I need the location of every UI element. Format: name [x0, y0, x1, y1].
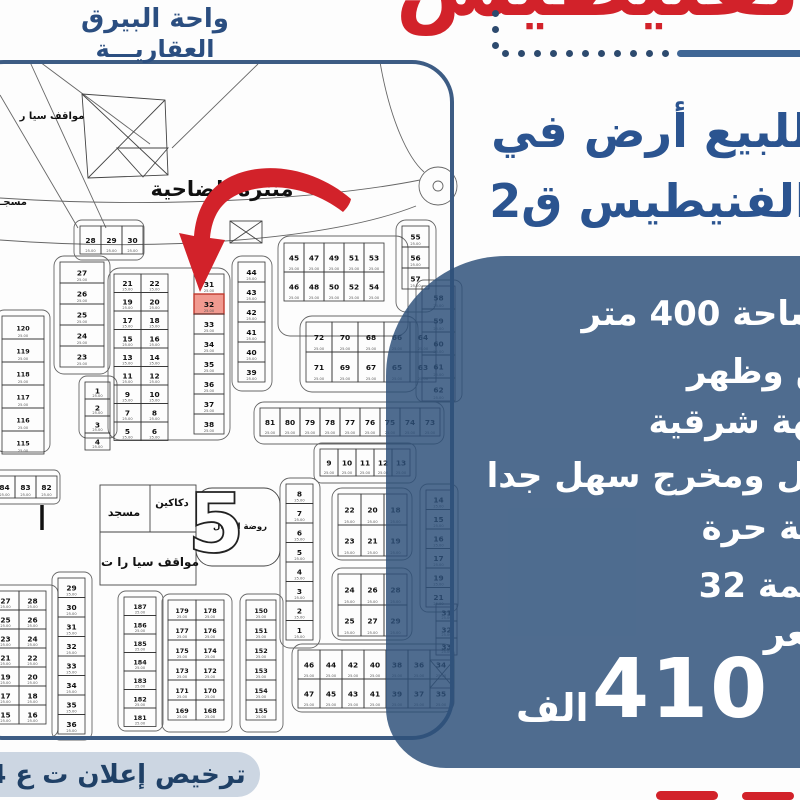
plot-dimension: 25.00 — [92, 428, 103, 432]
plot-number: 4 — [297, 568, 302, 577]
license-text: ترخيص إعلان ت ع 64 — [0, 760, 246, 790]
plot-dimension: 25.00 — [122, 343, 133, 347]
plot-dimension: 25.00 — [246, 377, 257, 381]
plot-dimension: 25.00 — [349, 267, 360, 271]
plot-number: 24 — [77, 331, 87, 340]
plot-dimension: 25.00 — [149, 306, 160, 310]
plot-number: 50 — [329, 282, 339, 291]
red-title: الفنيطيس — [430, 0, 800, 36]
plot-number: 41 — [370, 689, 380, 698]
dot — [582, 50, 589, 57]
plot-dimension: 25.00 — [246, 277, 257, 281]
plot-number: 55 — [410, 232, 420, 241]
plot-dimension: 25.00 — [177, 655, 188, 659]
plot-number: 118 — [16, 370, 30, 378]
plot-dimension: 25.00 — [204, 349, 215, 353]
plot-dimension: 25.00 — [324, 471, 335, 475]
plot-number: 81 — [265, 418, 275, 427]
plot-dimension: 25.00 — [289, 296, 300, 300]
plot-number: 13 — [122, 353, 132, 362]
plot-number: 17 — [122, 316, 132, 325]
price-value: 410 — [592, 642, 769, 737]
plot-dimension: 25.00 — [27, 605, 38, 609]
plot-dimension: 25.00 — [92, 394, 103, 398]
plot-dimension: 25.00 — [20, 493, 31, 497]
plot-dimension: 25.00 — [294, 577, 305, 581]
plot-dimension: 25.00 — [149, 399, 160, 403]
plot-dimension: 25.00 — [367, 551, 378, 555]
plot-dimension: 25.00 — [135, 685, 146, 689]
dot — [492, 10, 499, 17]
plot-dimension: 25.00 — [326, 674, 337, 678]
plot-number: 54 — [369, 282, 379, 291]
plot-dimension: 25.00 — [0, 605, 11, 609]
plot-dimension: 25.00 — [122, 306, 133, 310]
plot-dimension: 25.00 — [344, 551, 355, 555]
plot-number: 153 — [254, 667, 267, 675]
plot-number: 18 — [27, 691, 37, 700]
plot-dimension: 25.00 — [122, 380, 133, 384]
plot-dimension: 25.00 — [27, 700, 38, 704]
plot-dimension: 25.00 — [66, 710, 77, 714]
plot-dimension: 25.00 — [314, 347, 325, 351]
plot-dimension: 25.00 — [0, 624, 11, 628]
brand-name-line1: واحة البيرق — [40, 4, 270, 35]
plot-number: 171 — [175, 687, 188, 695]
red-sliver — [656, 791, 718, 800]
plot-number: 24 — [27, 634, 37, 643]
plot-dimension: 25.00 — [122, 288, 133, 292]
plot-number: 67 — [366, 363, 376, 372]
plot-dimension: 25.00 — [149, 417, 160, 421]
plot-dimension: 25.00 — [18, 334, 29, 338]
plot-number: 27 — [367, 616, 377, 625]
plot-number: 72 — [314, 333, 324, 342]
plot-number: 20 — [149, 298, 159, 307]
plot-number: 19 — [122, 298, 132, 307]
plot-number: 45 — [326, 689, 336, 698]
red-sliver — [742, 792, 794, 800]
plot-number: 27 — [77, 268, 87, 277]
plot-number: 7 — [297, 509, 302, 518]
plot-dimension: 25.00 — [340, 347, 351, 351]
dot — [492, 42, 499, 49]
car-park-label: مواقف سيا را ت — [101, 555, 199, 570]
plot-dimension: 25.00 — [0, 719, 11, 723]
plot-dimension: 25.00 — [204, 389, 215, 393]
plot-number: 169 — [175, 707, 189, 715]
plot-dimension: 25.00 — [127, 249, 138, 253]
plot-number: 5 — [125, 427, 130, 436]
feature-access: مدخل ومخرج سهل جدا — [487, 456, 800, 496]
plot-number: 46 — [289, 282, 299, 291]
plot-number: 173 — [175, 667, 188, 675]
plot-number: 36 — [204, 380, 214, 389]
plot-dimension: 25.00 — [285, 431, 296, 435]
plot-dimension: 25.00 — [0, 643, 11, 647]
plot-number: 43 — [246, 288, 256, 297]
plot-dimension: 25.00 — [294, 616, 305, 620]
price-unit: الف — [516, 686, 589, 730]
plot-dimension: 25.00 — [205, 675, 216, 679]
plot-dimension: 25.00 — [370, 674, 381, 678]
plot-number: 9 — [125, 390, 130, 399]
plot-dimension: 25.00 — [0, 493, 10, 497]
plot-dimension: 25.00 — [18, 380, 29, 384]
dot — [550, 50, 557, 57]
plot-dimension: 25.00 — [18, 357, 29, 361]
plot-dimension: 25.00 — [135, 722, 146, 726]
plot-dimension: 25.00 — [369, 267, 380, 271]
plot-number: 11 — [360, 458, 370, 467]
plot-dimension: 25.00 — [204, 309, 215, 313]
plot-number: 120 — [16, 324, 30, 332]
plot-dimension: 25.00 — [77, 299, 88, 303]
brand-name-line2: العقاريـــة — [40, 35, 270, 64]
plot-dimension: 25.00 — [410, 284, 421, 288]
plot-dimension: 25.00 — [309, 296, 320, 300]
plot-number: 45 — [289, 253, 299, 262]
plot-number: 27 — [0, 596, 10, 605]
plot-number: 11 — [122, 372, 132, 381]
plot-number: 12 — [149, 372, 159, 381]
plot-dimension: 25.00 — [348, 703, 359, 707]
plot-dimension: 25.00 — [27, 681, 38, 685]
plot-dimension: 25.00 — [149, 325, 160, 329]
plot-dimension: 25.00 — [205, 635, 216, 639]
plot-dimension: 25.00 — [366, 347, 377, 351]
plot-dimension: 25.00 — [367, 631, 378, 635]
plot-number: 20 — [367, 505, 377, 514]
plot-number: 25 — [77, 310, 87, 319]
plot-dimension: 25.00 — [177, 635, 188, 639]
plot-dimension: 25.00 — [344, 600, 355, 604]
plot-number: 41 — [246, 328, 256, 337]
feature-facade: واجهة شرقية — [648, 402, 800, 442]
plot-dimension: 25.00 — [18, 449, 29, 453]
plot-dimension: 25.00 — [246, 317, 257, 321]
plot-dimension: 25.00 — [27, 643, 38, 647]
plot-number: 170 — [203, 687, 217, 695]
plot-number: 37 — [204, 400, 214, 409]
plot-dimension: 25.00 — [256, 695, 267, 699]
plot-dimension: 25.00 — [360, 471, 371, 475]
plot-dimension: 25.00 — [369, 296, 380, 300]
plot-dimension: 25.00 — [204, 289, 215, 293]
sale-headline-line1: للبيع أرض في — [440, 104, 800, 158]
plot-dimension: 25.00 — [177, 715, 188, 719]
plot-dimension: 25.00 — [135, 611, 146, 615]
plot-number: 22 — [27, 653, 37, 662]
plot-dimension: 25.00 — [265, 431, 276, 435]
plot-number: 33 — [66, 662, 76, 671]
plot-number: 31 — [66, 623, 76, 632]
plot-number: 14 — [149, 353, 159, 362]
plot-number: 10 — [342, 458, 352, 467]
plot-number: 18 — [149, 316, 159, 325]
plot-dimension: 25.00 — [0, 681, 11, 685]
horizontal-dotted-separator — [502, 50, 669, 57]
plot-dimension: 25.00 — [77, 320, 88, 324]
plot-dimension: 25.00 — [18, 403, 29, 407]
plot-number: 19 — [0, 672, 10, 681]
plot-dimension: 25.00 — [85, 249, 96, 253]
plot-number: 79 — [305, 418, 315, 427]
plot-number: 48 — [309, 282, 319, 291]
plot-number: 44 — [246, 268, 256, 277]
plot-dimension: 25.00 — [366, 377, 377, 381]
plot-dimension: 25.00 — [66, 729, 77, 733]
plot-dimension: 25.00 — [348, 674, 359, 678]
plot-dimension: 25.00 — [246, 357, 257, 361]
plot-dimension: 25.00 — [135, 703, 146, 707]
plot-dimension: 25.00 — [325, 431, 336, 435]
plot-dimension: 25.00 — [204, 329, 215, 333]
plot-number: 32 — [66, 642, 76, 651]
plot-number: 17 — [0, 691, 10, 700]
plot-number: 77 — [345, 418, 355, 427]
plot-number: 155 — [254, 707, 267, 715]
dot — [492, 26, 499, 33]
plot-dimension: 25.00 — [256, 635, 267, 639]
plot-number: 25 — [0, 615, 10, 624]
plot-dimension: 25.00 — [342, 471, 353, 475]
plot-dimension: 25.00 — [66, 671, 77, 675]
plot-number: 82 — [41, 483, 51, 492]
plot-dimension: 25.00 — [204, 409, 215, 413]
plot-dimension: 25.00 — [149, 436, 160, 440]
plot-number: 21 — [122, 279, 132, 288]
plot-dimension: 25.00 — [246, 297, 257, 301]
plot-dimension: 25.00 — [18, 426, 29, 430]
plot-number: 168 — [203, 707, 217, 715]
plot-dimension: 25.00 — [294, 538, 305, 542]
plot-number: 40 — [246, 348, 256, 357]
license-pill: ترخيص إعلان ت ع 64 — [0, 752, 260, 797]
plot-number: 83 — [20, 483, 30, 492]
dot — [502, 50, 509, 57]
plot-number: 36 — [66, 720, 76, 729]
plot-number: 5 — [297, 548, 302, 557]
feature-deed: وثيقة حرة — [702, 508, 800, 548]
solid-separator-bar — [677, 50, 800, 57]
plot-dimension: 25.00 — [256, 655, 267, 659]
plot-dimension: 25.00 — [27, 624, 38, 628]
price-label: السعر — [764, 612, 800, 655]
plot-number: 43 — [348, 689, 358, 698]
plot-number: 26 — [77, 289, 87, 298]
plot-dimension: 25.00 — [329, 296, 340, 300]
plot-number: 16 — [27, 710, 37, 719]
dot — [614, 50, 621, 57]
plot-dimension: 25.00 — [289, 267, 300, 271]
plot-dimension: 25.00 — [294, 518, 305, 522]
plot-number: 42 — [348, 660, 358, 669]
plot-number: 35 — [204, 360, 214, 369]
plot-number: 174 — [203, 647, 217, 655]
offer-panel: المساحة 400 متر بطن وظهر واجهة شرقية مدخ… — [386, 256, 800, 768]
plot-number: 116 — [16, 416, 30, 424]
plot-dimension: 25.00 — [370, 703, 381, 707]
plot-number: 8 — [297, 490, 302, 499]
plot-dimension: 25.00 — [122, 399, 133, 403]
plot-number: 117 — [16, 393, 29, 401]
plot-number: 178 — [203, 607, 217, 615]
plot-dimension: 25.00 — [122, 417, 133, 421]
plot-number: 179 — [175, 607, 189, 615]
plot-number: 25 — [344, 616, 354, 625]
plot-dimension: 25.00 — [41, 493, 52, 497]
plot-dimension: 25.00 — [340, 377, 351, 381]
plot-number: 34 — [66, 681, 76, 690]
plot-number: 29 — [106, 236, 116, 245]
plot-number: 33 — [204, 320, 214, 329]
plot-number: 119 — [16, 347, 30, 355]
plot-dimension: 25.00 — [410, 242, 421, 246]
plot-dimension: 25.00 — [77, 278, 88, 282]
dot — [566, 50, 573, 57]
plot-number: 9 — [326, 458, 331, 467]
plot-number: 22 — [344, 505, 354, 514]
plot-number: 10 — [149, 390, 159, 399]
plot-number: 21 — [367, 536, 377, 545]
plot-number: 15 — [122, 335, 132, 344]
plot-dimension: 25.00 — [329, 267, 340, 271]
plot-dimension: 25.00 — [149, 362, 160, 366]
block-big-digit: 5 — [187, 477, 244, 572]
plot-dimension: 25.00 — [122, 362, 133, 366]
plot-dimension: 25.00 — [149, 343, 160, 347]
dot — [646, 50, 653, 57]
plot-number: 44 — [326, 660, 336, 669]
plot-dimension: 25.00 — [205, 715, 216, 719]
plot-number: 53 — [369, 253, 379, 262]
plot-number: 78 — [325, 418, 335, 427]
plot-number: 24 — [344, 585, 354, 594]
plot-number: 172 — [203, 667, 216, 675]
plot-number: 47 — [304, 689, 314, 698]
plot-number: 154 — [254, 687, 268, 695]
plot-number: 30 — [66, 603, 76, 612]
plot-dimension: 25.00 — [365, 431, 376, 435]
plot-dimension: 25.00 — [205, 695, 216, 699]
plot-number: 3 — [297, 587, 302, 596]
plot-number: 31 — [204, 280, 214, 289]
plot-number: 150 — [254, 607, 268, 615]
plot-dimension: 25.00 — [367, 600, 378, 604]
plot-number: 23 — [77, 352, 87, 361]
plot-number: 35 — [66, 701, 76, 710]
plot-dimension: 25.00 — [66, 593, 77, 597]
plot-number: 76 — [365, 418, 375, 427]
plot-number: 28 — [27, 596, 37, 605]
plot-number: 151 — [254, 627, 267, 635]
plot-number: 21 — [0, 653, 10, 662]
plot-number: 47 — [309, 253, 319, 262]
plot-number: 1 — [297, 626, 302, 635]
plot-dimension: 25.00 — [256, 715, 267, 719]
plot-dimension: 25.00 — [367, 520, 378, 524]
plot-dimension: 25.00 — [344, 520, 355, 524]
plot-number: 175 — [175, 647, 188, 655]
mosque-label: مسجد — [108, 506, 140, 519]
mosque-edge-label: مسجـ — [0, 197, 27, 208]
plot-number: 34 — [204, 340, 214, 349]
plot-number: 23 — [0, 634, 10, 643]
plot-dimension: 25.00 — [294, 635, 305, 639]
plot-dimension: 25.00 — [77, 341, 88, 345]
plot-number: 16 — [149, 335, 159, 344]
plot-number: 177 — [175, 627, 188, 635]
plot-number: 6 — [152, 427, 157, 436]
plot-number: 26 — [27, 615, 37, 624]
plot-dimension: 25.00 — [135, 666, 146, 670]
plot-dimension: 25.00 — [0, 662, 11, 666]
plot-dimension: 25.00 — [246, 337, 257, 341]
plot-dimension: 25.00 — [92, 411, 103, 415]
plot-number: 70 — [340, 333, 350, 342]
sale-headline-line2: الفنيطيس ق2 — [440, 174, 800, 228]
plot-number: 69 — [340, 363, 350, 372]
plot-dimension: 25.00 — [92, 445, 103, 449]
plot-dimension: 25.00 — [27, 719, 38, 723]
plot-number: 38 — [204, 420, 214, 429]
plot-dimension: 25.00 — [177, 695, 188, 699]
plot-number: 20 — [27, 672, 37, 681]
plot-dimension: 25.00 — [66, 632, 77, 636]
plot-dimension: 25.00 — [135, 648, 146, 652]
plot-dimension: 25.00 — [304, 703, 315, 707]
plot-dimension: 25.00 — [344, 631, 355, 635]
plot-dimension: 25.00 — [177, 615, 188, 619]
plot-dimension: 25.00 — [204, 369, 215, 373]
plot-dimension: 25.00 — [205, 655, 216, 659]
plot-dimension: 25.00 — [256, 675, 267, 679]
vertical-dotted-separator — [492, 10, 499, 49]
plot-dimension: 25.00 — [410, 263, 421, 267]
plot-dimension: 25.00 — [77, 362, 88, 366]
plot-number: 46 — [304, 660, 314, 669]
plot-number: 84 — [0, 483, 10, 492]
plot-number: 2 — [297, 607, 302, 616]
dot — [630, 50, 637, 57]
feature-area: المساحة 400 متر — [582, 294, 800, 334]
plot-number: 115 — [16, 439, 29, 447]
plot-number: 57 — [410, 274, 420, 283]
plot-dimension: 25.00 — [294, 596, 305, 600]
brand-logo: واحة البيرق العقاريـــة — [40, 4, 270, 64]
plot-dimension: 25.00 — [135, 629, 146, 633]
plot-dimension: 25.00 — [304, 674, 315, 678]
dot — [518, 50, 525, 57]
plot-number: 49 — [329, 253, 339, 262]
plot-dimension: 25.00 — [122, 325, 133, 329]
plot-dimension: 25.00 — [326, 703, 337, 707]
feature-frontback: بطن وظهر — [687, 352, 800, 392]
plot-number: 176 — [203, 627, 217, 635]
dot — [662, 50, 669, 57]
plot-number: 29 — [66, 584, 76, 593]
plot-dimension: 25.00 — [294, 499, 305, 503]
plot-number: 68 — [366, 333, 376, 342]
plot-number: 52 — [349, 282, 359, 291]
plot-number: 32 — [204, 300, 214, 309]
plot-number: 39 — [246, 368, 256, 377]
plot-dimension: 25.00 — [349, 296, 360, 300]
dot — [534, 50, 541, 57]
plot-number: 42 — [246, 308, 256, 317]
plot-dimension: 25.00 — [0, 700, 11, 704]
